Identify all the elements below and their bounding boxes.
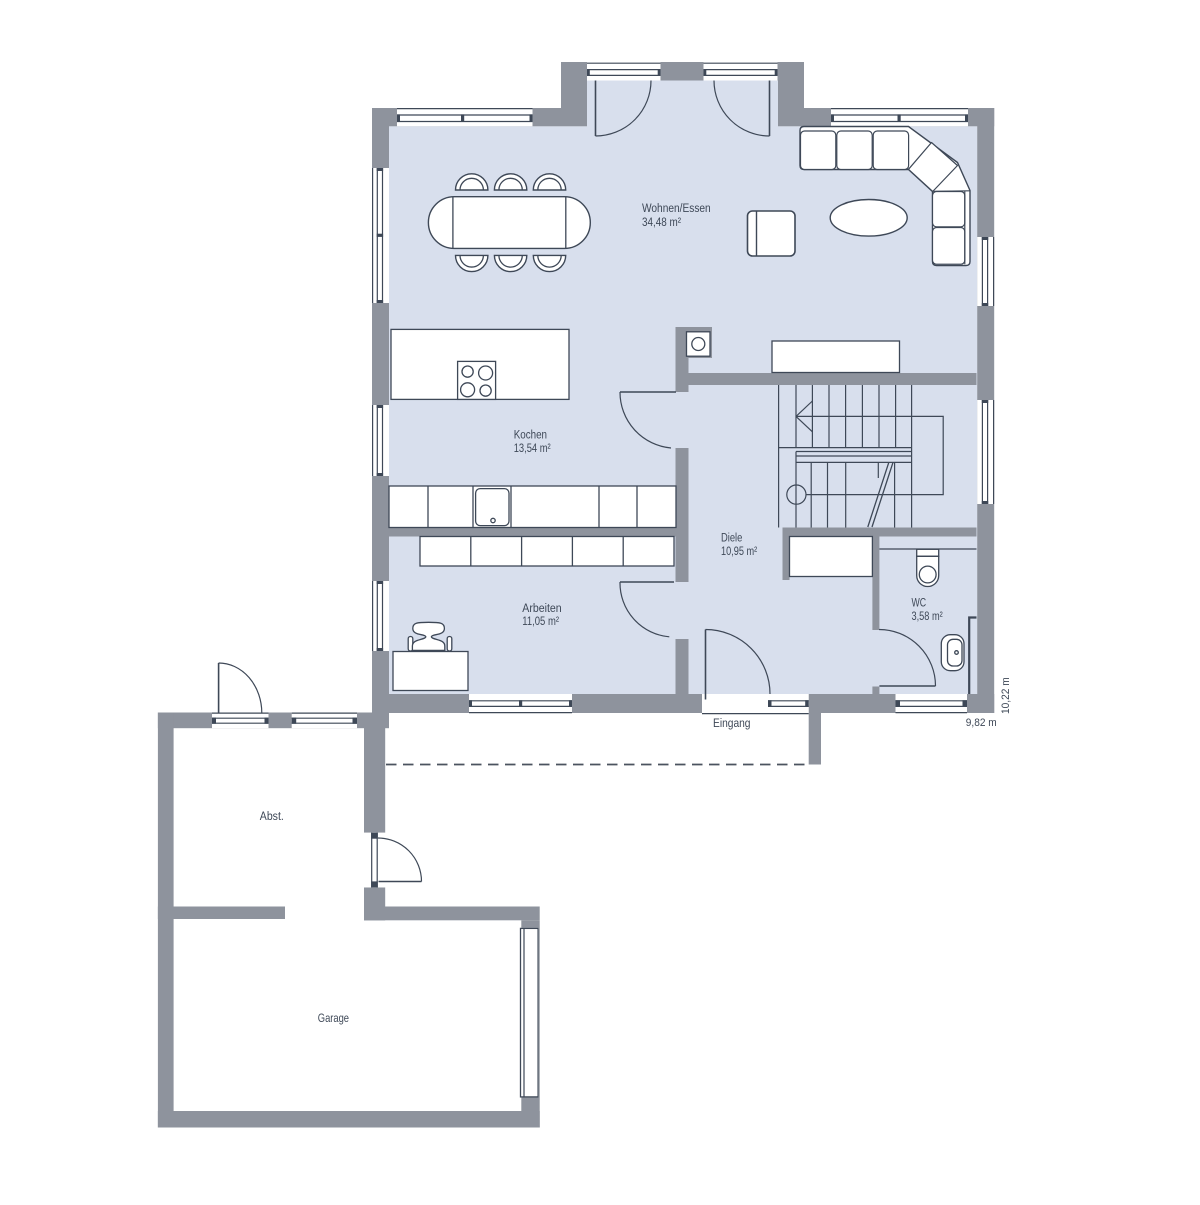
svg-text:Abst.: Abst. (260, 809, 284, 823)
svg-text:13,54 m²: 13,54 m² (514, 441, 551, 455)
svg-text:Diele: Diele (721, 531, 742, 545)
svg-text:Arbeiten: Arbeiten (522, 601, 561, 615)
svg-text:Garage: Garage (318, 1011, 349, 1025)
svg-text:WC: WC (912, 595, 927, 609)
svg-text:34,48 m²: 34,48 m² (642, 215, 681, 229)
svg-text:Wohnen/Essen: Wohnen/Essen (642, 201, 711, 215)
svg-text:10,95 m²: 10,95 m² (721, 544, 757, 558)
svg-text:Eingang: Eingang (713, 716, 751, 730)
svg-text:Kochen: Kochen (514, 428, 547, 442)
svg-text:10,22 m: 10,22 m (1000, 677, 1012, 714)
svg-text:3,58 m²: 3,58 m² (912, 609, 943, 623)
svg-text:11,05 m²: 11,05 m² (522, 614, 559, 628)
svg-text:9,82 m: 9,82 m (966, 717, 997, 729)
